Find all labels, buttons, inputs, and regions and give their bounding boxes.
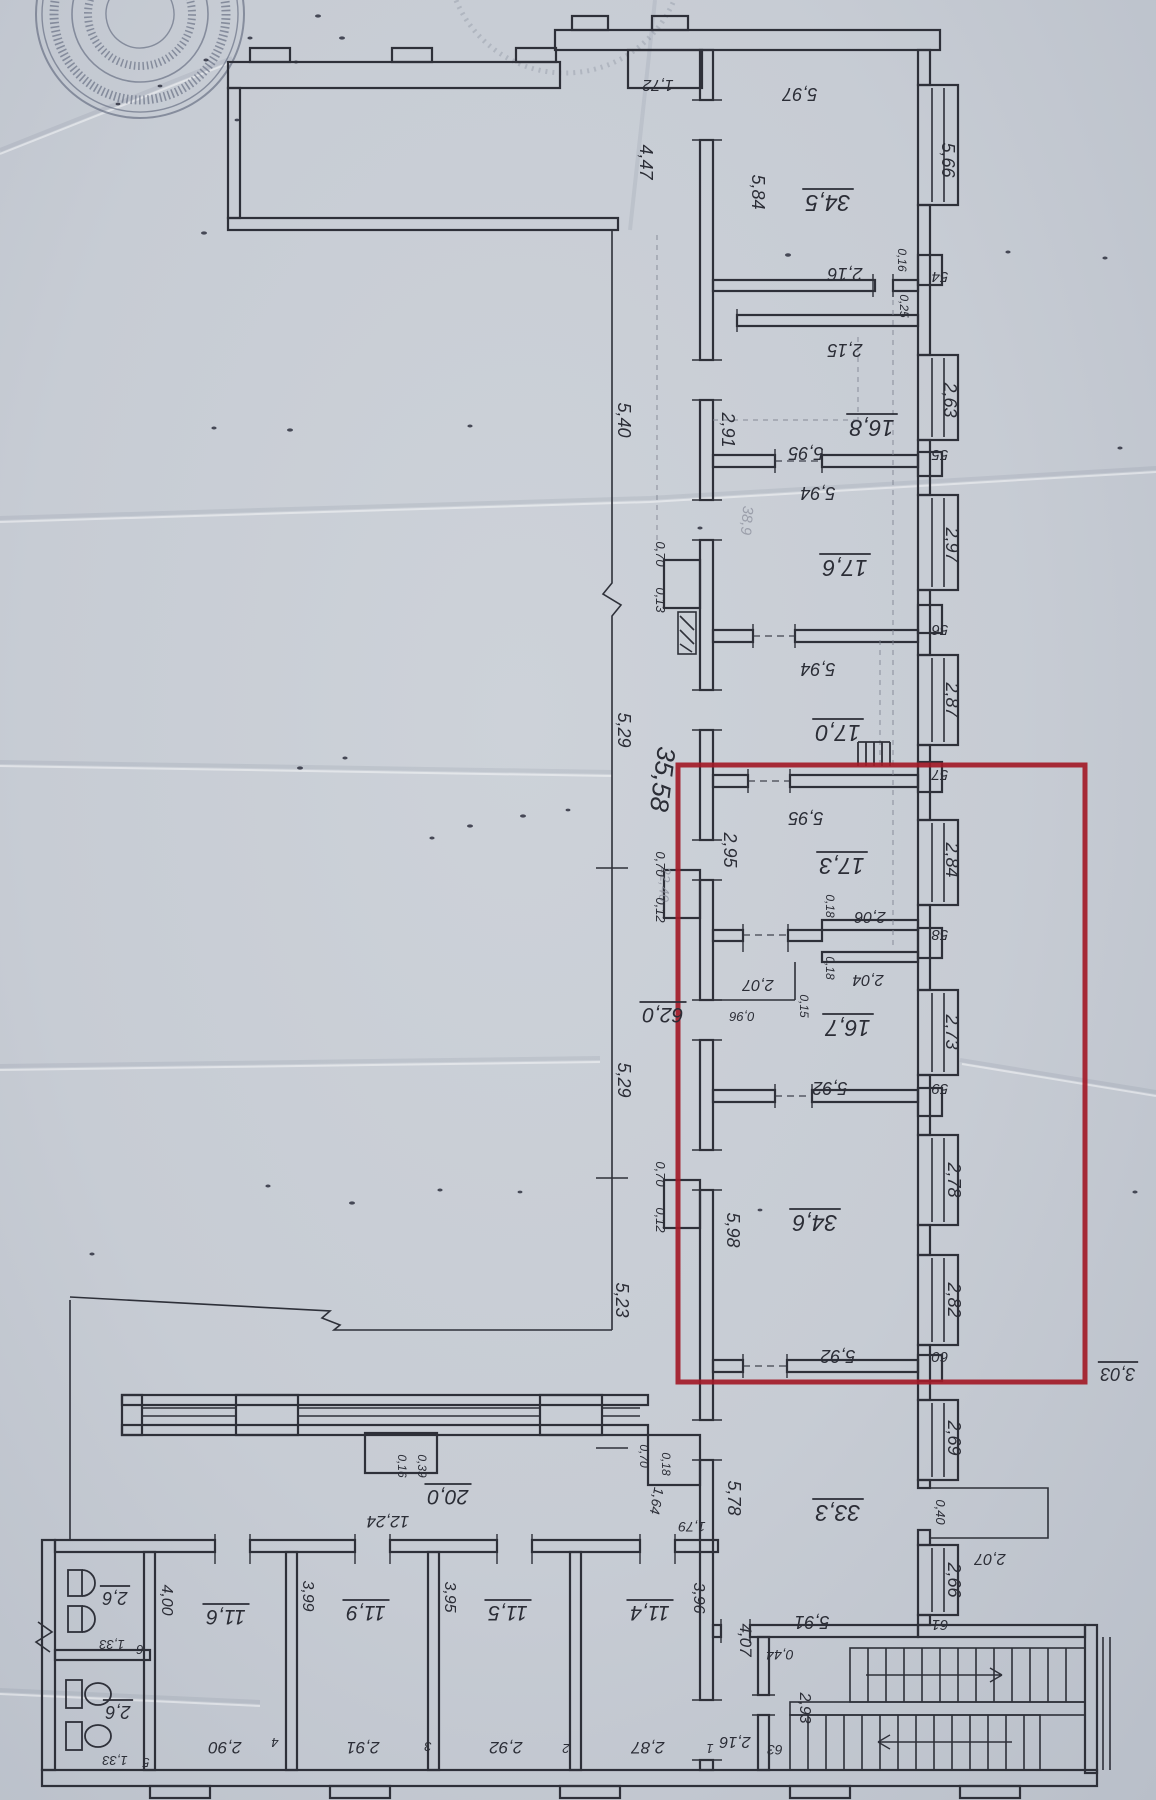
ink-specks xyxy=(89,14,1137,1255)
staircase xyxy=(790,1648,1085,1770)
svg-text:5,40: 5,40 xyxy=(614,402,634,437)
svg-text:11,4: 11,4 xyxy=(630,1601,669,1624)
dimension-label: 2,04 xyxy=(852,971,884,988)
dimension-label: 2,16 xyxy=(719,1733,751,1750)
svg-text:4,00: 4,00 xyxy=(158,1584,175,1615)
dimension-label: 0,18 xyxy=(823,894,837,918)
svg-text:1: 1 xyxy=(706,1741,713,1756)
dimension-label: 5,94 xyxy=(800,659,835,679)
svg-text:56: 56 xyxy=(931,621,948,638)
svg-text:0,18: 0,18 xyxy=(823,894,837,918)
room-number-label: 59 xyxy=(931,1080,948,1097)
dimension-label: 2,87 xyxy=(631,1738,666,1757)
room-number-label: 1 xyxy=(706,1741,713,1756)
room-area-label: 11,4 xyxy=(626,1600,673,1624)
svg-text:2,66: 2,66 xyxy=(944,1561,964,1598)
svg-text:3: 3 xyxy=(424,1739,432,1754)
svg-text:5: 5 xyxy=(142,1755,150,1770)
room-area-label: 17,6 xyxy=(819,554,871,581)
dimension-label: 5,91 xyxy=(794,1612,829,1632)
svg-text:5,92: 5,92 xyxy=(820,1346,855,1366)
dimension-label: 2,07 xyxy=(741,976,774,993)
dimension-label: 2,84 xyxy=(942,841,962,877)
dimension-label: 0,12 xyxy=(653,1207,668,1233)
svg-text:2,93: 2,93 xyxy=(796,1691,813,1723)
toilet-icon xyxy=(66,1722,111,1750)
dimension-label: 2,92 xyxy=(489,1738,524,1757)
dimension-label: 0,70 xyxy=(637,1444,651,1468)
room-number-label: 5 xyxy=(142,1755,150,1770)
svg-text:4,07: 4,07 xyxy=(736,1623,755,1657)
svg-text:0,44: 0,44 xyxy=(766,1647,793,1663)
dimension-label: 5,29 xyxy=(614,1062,634,1097)
svg-text:2,69: 2,69 xyxy=(944,1419,964,1455)
dimension-label: 3,95 xyxy=(441,1581,458,1612)
room-area-label: 17,3 xyxy=(816,852,868,879)
svg-text:2,16: 2,16 xyxy=(719,1733,751,1750)
paper-creases xyxy=(0,0,1156,1706)
dimension-label: 5,94 xyxy=(800,483,835,503)
dimension-label: 2,15 xyxy=(827,340,864,360)
room-area-label: 62,0 xyxy=(639,1002,686,1026)
room-area-label: 11,5 xyxy=(484,1600,531,1624)
dimension-label: 0,16 xyxy=(895,248,909,272)
svg-text:0,13: 0,13 xyxy=(653,587,668,613)
svg-text:2,15: 2,15 xyxy=(827,340,864,360)
svg-text:5,29: 5,29 xyxy=(614,1062,634,1097)
svg-text:0,12: 0,12 xyxy=(653,1207,668,1233)
room-number-label: 57 xyxy=(931,766,948,783)
room-number-label: 58 xyxy=(931,926,948,943)
room-area-label: 2,6 xyxy=(100,1586,130,1608)
svg-text:2,16: 2,16 xyxy=(827,264,864,284)
dimension-label: 4,00 xyxy=(158,1584,175,1615)
svg-text:0,70: 0,70 xyxy=(637,1444,651,1468)
svg-text:0,96: 0,96 xyxy=(729,1009,755,1024)
svg-text:0,15: 0,15 xyxy=(797,994,811,1018)
svg-text:1,79: 1,79 xyxy=(678,1519,705,1535)
dimension-label: 2,07 xyxy=(973,1550,1006,1567)
dimension-label: 0,70 xyxy=(653,1161,668,1187)
svg-text:2,82: 2,82 xyxy=(944,1281,964,1317)
plumbing-fixtures xyxy=(66,742,890,1750)
room-area-label: 3,03 xyxy=(1098,1362,1138,1384)
dimension-label: 0,18 xyxy=(659,1452,673,1476)
dimension-label: 2,97 xyxy=(942,526,962,563)
room-number-label: 3 xyxy=(424,1739,432,1754)
floor-plan-drawing: 34,516,817,617,017,316,734,633,362,020,0… xyxy=(0,0,1156,1800)
svg-text:2,91: 2,91 xyxy=(346,1738,380,1757)
svg-text:2,87: 2,87 xyxy=(942,681,962,718)
room-area-label: 34,6 xyxy=(789,1209,841,1236)
dimension-label: 1,33 xyxy=(99,1637,125,1652)
svg-text:2,84: 2,84 xyxy=(942,841,962,877)
dimension-label: 0,39 xyxy=(415,1454,429,1478)
svg-text:17,0: 17,0 xyxy=(815,720,860,746)
svg-text:3,96: 3,96 xyxy=(690,1582,707,1613)
dimension-label: 4,47 xyxy=(636,144,656,180)
dimension-label: 2,63 xyxy=(940,381,960,417)
room-area-label: 11,9 xyxy=(342,1600,389,1624)
dimension-label: 2,78 xyxy=(944,1161,964,1197)
svg-text:2,95: 2,95 xyxy=(720,831,740,868)
dimension-label: 2,91 xyxy=(718,411,738,447)
svg-text:5,92: 5,92 xyxy=(812,1078,847,1098)
svg-text:60: 60 xyxy=(931,1348,948,1365)
dimension-label: 1,72 xyxy=(642,76,673,93)
svg-text:0,16: 0,16 xyxy=(895,248,909,272)
svg-text:2,06: 2,06 xyxy=(854,908,886,925)
dimension-label: 3,99 xyxy=(299,1580,316,1611)
svg-text:57: 57 xyxy=(931,766,948,783)
svg-text:5,95: 5,95 xyxy=(788,443,824,463)
dimension-label: 2,73 xyxy=(942,1013,962,1049)
svg-text:11,5: 11,5 xyxy=(488,1601,528,1624)
svg-text:0,25: 0,25 xyxy=(897,294,911,318)
svg-text:16,8: 16,8 xyxy=(849,415,894,441)
svg-text:5,23: 5,23 xyxy=(612,1282,632,1317)
dimension-label: 5,98 xyxy=(723,1212,743,1247)
dimension-label: 2,87 xyxy=(942,681,962,718)
svg-text:0,16: 0,16 xyxy=(395,1454,409,1478)
svg-text:2,6: 2,6 xyxy=(105,1702,132,1722)
dimension-label: 2,16 xyxy=(827,264,864,284)
room-number-label: 61 xyxy=(932,1616,949,1633)
dimension-label: 2,91 xyxy=(346,1738,380,1757)
dimension-label: 0,18 xyxy=(823,956,837,980)
svg-text:5,29: 5,29 xyxy=(614,712,634,747)
dimension-label: 2,93 xyxy=(796,1691,813,1723)
svg-text:2,6: 2,6 xyxy=(102,1588,129,1608)
svg-text:5,94: 5,94 xyxy=(800,483,835,503)
dimension-label: 5,84 xyxy=(748,174,768,209)
svg-text:2,63: 2,63 xyxy=(940,381,960,417)
room-area-label: 16,8 xyxy=(846,414,898,441)
svg-text:12,24: 12,24 xyxy=(367,1512,410,1531)
dimension-label: 2,95 xyxy=(720,831,740,868)
svg-text:5,84: 5,84 xyxy=(748,174,768,209)
dimension-label: 5,95 xyxy=(788,808,824,828)
dimension-label: 38,9 xyxy=(737,505,757,536)
svg-text:0,70: 0,70 xyxy=(653,541,668,567)
room-number-label: 63 xyxy=(767,1742,783,1758)
svg-text:5,66: 5,66 xyxy=(938,142,958,178)
svg-text:2,91: 2,91 xyxy=(718,411,738,447)
room-area-label: 17,0 xyxy=(812,719,864,746)
dimension-label: 5,23 xyxy=(612,1282,632,1317)
svg-text:20,0: 20,0 xyxy=(427,1485,469,1508)
svg-text:2,87: 2,87 xyxy=(631,1738,666,1757)
svg-text:0,40: 0,40 xyxy=(933,1499,948,1525)
dimension-label: 2,06 xyxy=(854,908,886,925)
dimension-label: 0,70 xyxy=(653,541,668,567)
dimension-label: 4,07 xyxy=(736,1623,755,1657)
dimension-label: 0,25 xyxy=(897,294,911,318)
svg-text:3,95: 3,95 xyxy=(441,1581,458,1612)
sink-icon xyxy=(68,1570,95,1596)
svg-text:54: 54 xyxy=(932,268,949,285)
svg-text:2,90: 2,90 xyxy=(208,1738,243,1757)
svg-text:11,9: 11,9 xyxy=(346,1601,386,1624)
dimension-label: 2,66 xyxy=(944,1561,964,1598)
dimension-label: 0,40 xyxy=(933,1499,948,1525)
svg-text:2,04: 2,04 xyxy=(852,971,884,988)
room-area-label: 34,5 xyxy=(802,189,854,216)
room-area-label: 2,6 xyxy=(103,1700,133,1722)
dimension-label: 3,96 xyxy=(690,1582,707,1613)
sink-icon xyxy=(68,1606,95,1632)
dimension-label: 1,64 xyxy=(647,1486,668,1516)
room-area-label: 16,7 xyxy=(822,1014,874,1041)
dimension-label: 5,92 xyxy=(812,1078,847,1098)
svg-text:34,5: 34,5 xyxy=(805,190,850,216)
dimension-label: 5,66 xyxy=(938,142,958,178)
room-number-label: 55 xyxy=(931,446,948,463)
svg-text:1,72: 1,72 xyxy=(642,76,673,93)
room-number-label: 4 xyxy=(271,1735,278,1750)
room-number-label: 2 xyxy=(562,1741,571,1756)
svg-text:55: 55 xyxy=(931,446,948,463)
radiator-icon xyxy=(858,742,890,766)
room-number-label: 6 xyxy=(136,1642,144,1657)
dimension-label: 5,97 xyxy=(782,84,818,104)
dimension-label: 0,13 xyxy=(653,587,668,613)
svg-text:17,3: 17,3 xyxy=(819,853,864,879)
dimension-label: 2,90 xyxy=(208,1738,243,1757)
svg-text:0,70: 0,70 xyxy=(653,1161,668,1187)
svg-text:0,18: 0,18 xyxy=(659,1452,673,1476)
dimension-label: 1,79 xyxy=(678,1519,705,1535)
dimension-label: 0,15 xyxy=(797,994,811,1018)
room-area-label: 33,3 xyxy=(812,1499,864,1526)
svg-text:0,12: 0,12 xyxy=(653,897,668,923)
svg-text:2: 2 xyxy=(562,1741,571,1756)
svg-text:1,33: 1,33 xyxy=(99,1637,125,1652)
svg-text:5,94: 5,94 xyxy=(800,659,835,679)
svg-text:2,07: 2,07 xyxy=(973,1550,1006,1567)
svg-text:6: 6 xyxy=(136,1642,144,1657)
dimension-label: 0,44 xyxy=(766,1647,793,1663)
svg-text:5,95: 5,95 xyxy=(788,808,824,828)
svg-text:3,03: 3,03 xyxy=(1100,1364,1135,1384)
svg-text:2,73: 2,73 xyxy=(942,1013,962,1049)
svg-text:2,78: 2,78 xyxy=(944,1161,964,1197)
svg-text:62,0: 62,0 xyxy=(642,1003,683,1026)
svg-text:58: 58 xyxy=(931,926,948,943)
svg-text:38,9: 38,9 xyxy=(737,505,757,536)
svg-text:4,47: 4,47 xyxy=(636,144,656,180)
dimension-label: 5,40 xyxy=(614,402,634,437)
svg-text:17,6: 17,6 xyxy=(822,555,867,581)
svg-text:2,07: 2,07 xyxy=(741,976,774,993)
dimension-label: 5,95 xyxy=(788,443,824,463)
room-number-label: 54 xyxy=(932,268,949,285)
svg-text:5,98: 5,98 xyxy=(723,1212,743,1247)
svg-text:0,18: 0,18 xyxy=(823,956,837,980)
svg-text:16,7: 16,7 xyxy=(824,1015,870,1041)
dimension-label: 12,24 xyxy=(367,1512,410,1531)
dimension-label: 5,29 xyxy=(614,712,634,747)
dimension-label: 5,78 xyxy=(724,1480,744,1515)
dimension-labels-layer: 34,516,817,617,017,316,734,633,362,020,0… xyxy=(99,76,1139,1770)
dimension-label: 1,33 xyxy=(102,1753,128,1768)
dimension-label: 0,70 xyxy=(653,851,668,877)
dimension-label: 0,12 xyxy=(653,897,668,923)
svg-text:5,78: 5,78 xyxy=(724,1480,744,1515)
dimension-label: 2,82 xyxy=(944,1281,964,1317)
scanned-floor-plan-page: 34,516,817,617,017,316,734,633,362,020,0… xyxy=(0,0,1156,1800)
room-number-label: 60 xyxy=(931,1348,948,1365)
svg-text:34,6: 34,6 xyxy=(792,1210,837,1236)
dimension-label: 2,69 xyxy=(944,1419,964,1455)
svg-text:2,92: 2,92 xyxy=(489,1738,524,1757)
dimension-label: 0,96 xyxy=(729,1009,755,1024)
svg-text:59: 59 xyxy=(931,1080,948,1097)
dimension-label: 0,16 xyxy=(395,1454,409,1478)
svg-text:2,97: 2,97 xyxy=(942,526,962,563)
svg-text:0,39: 0,39 xyxy=(415,1454,429,1478)
room-area-label: 11,6 xyxy=(202,1604,249,1628)
room-number-label: 56 xyxy=(931,621,948,638)
svg-text:61: 61 xyxy=(932,1616,949,1633)
svg-text:5,91: 5,91 xyxy=(794,1612,829,1632)
dimension-label: 5,92 xyxy=(820,1346,855,1366)
svg-text:63: 63 xyxy=(767,1742,783,1758)
svg-text:33,3: 33,3 xyxy=(815,1500,860,1526)
svg-text:4: 4 xyxy=(271,1735,278,1750)
svg-text:5,97: 5,97 xyxy=(782,84,818,104)
svg-text:0,70: 0,70 xyxy=(653,851,668,877)
svg-text:1,64: 1,64 xyxy=(647,1486,668,1516)
room-area-label: 20,0 xyxy=(424,1484,471,1508)
svg-text:11,6: 11,6 xyxy=(206,1605,246,1628)
svg-text:1,33: 1,33 xyxy=(102,1753,128,1768)
svg-text:3,99: 3,99 xyxy=(299,1580,316,1611)
